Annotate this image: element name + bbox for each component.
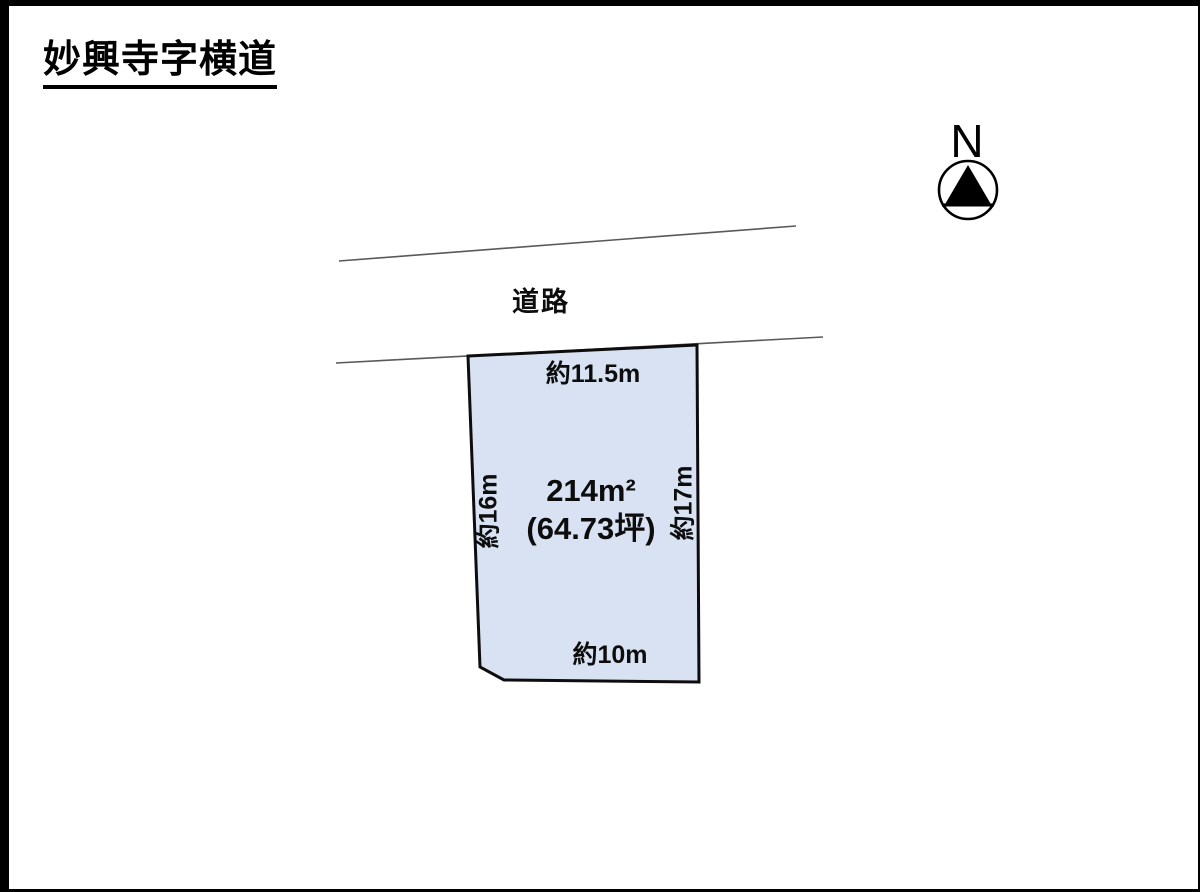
plot-plan-page: 妙興寺字横道 N 道路 約11.5m 約16m 約17m 約10m 214m² … [0,0,1200,892]
road-label: 道路 [512,289,570,316]
dimension-bottom-label: 約10m [572,643,647,668]
plot-area-sqm: 214m² [526,472,655,510]
plot-diagram [9,6,1198,889]
plot-area-block: 214m² (64.73坪) [526,472,655,548]
dimension-left-label: 約16m [477,473,502,548]
north-compass-icon [939,161,997,219]
road-line-upper [339,226,796,261]
dimension-top-label: 約11.5m [546,362,641,387]
dimension-right-label: 約17m [672,465,697,540]
plot-area-tsubo: (64.73坪) [526,510,655,548]
